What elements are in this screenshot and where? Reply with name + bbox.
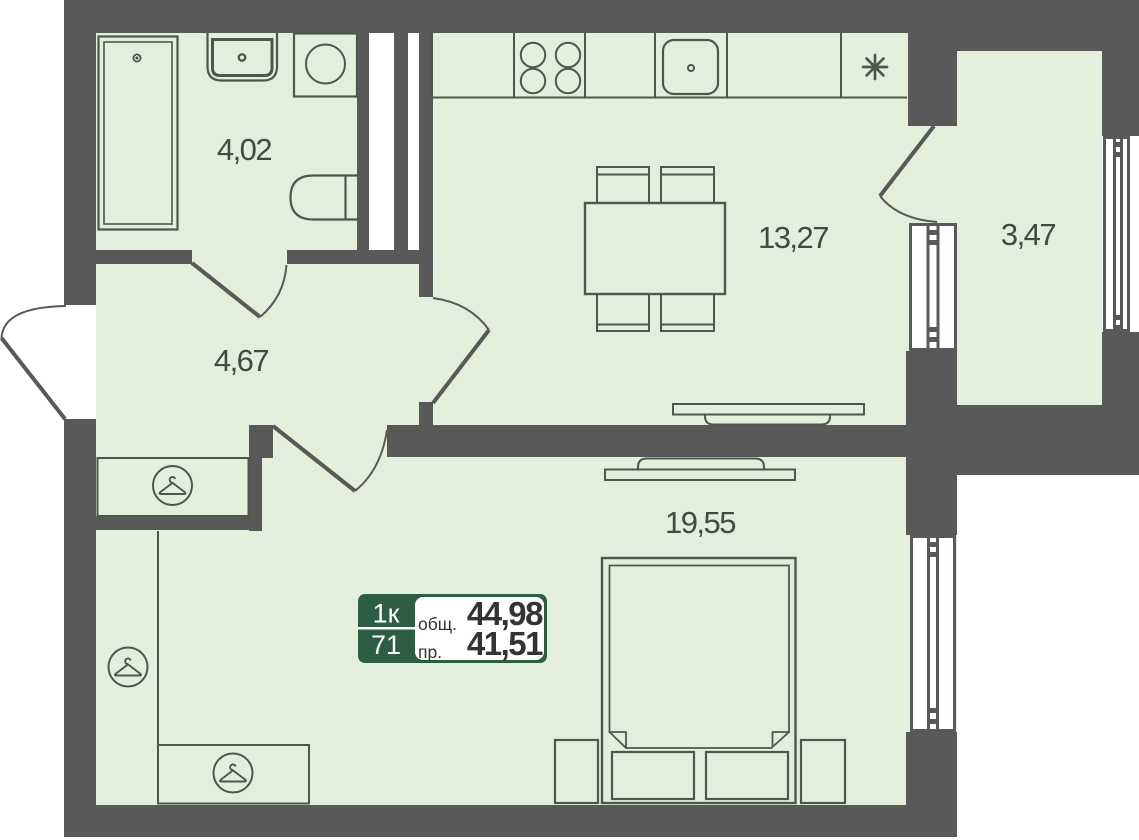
- svg-text:4,67: 4,67: [214, 343, 269, 378]
- svg-text:3,47: 3,47: [1001, 217, 1056, 252]
- svg-text:71: 71: [371, 630, 401, 660]
- svg-text:41,51: 41,51: [467, 625, 543, 662]
- svg-text:4,02: 4,02: [217, 132, 272, 167]
- svg-text:общ.: общ.: [418, 614, 457, 634]
- svg-text:1к: 1к: [373, 599, 400, 629]
- svg-text:пр.: пр.: [418, 642, 442, 662]
- svg-text:13,27: 13,27: [758, 220, 828, 255]
- svg-text:19,55: 19,55: [665, 505, 735, 540]
